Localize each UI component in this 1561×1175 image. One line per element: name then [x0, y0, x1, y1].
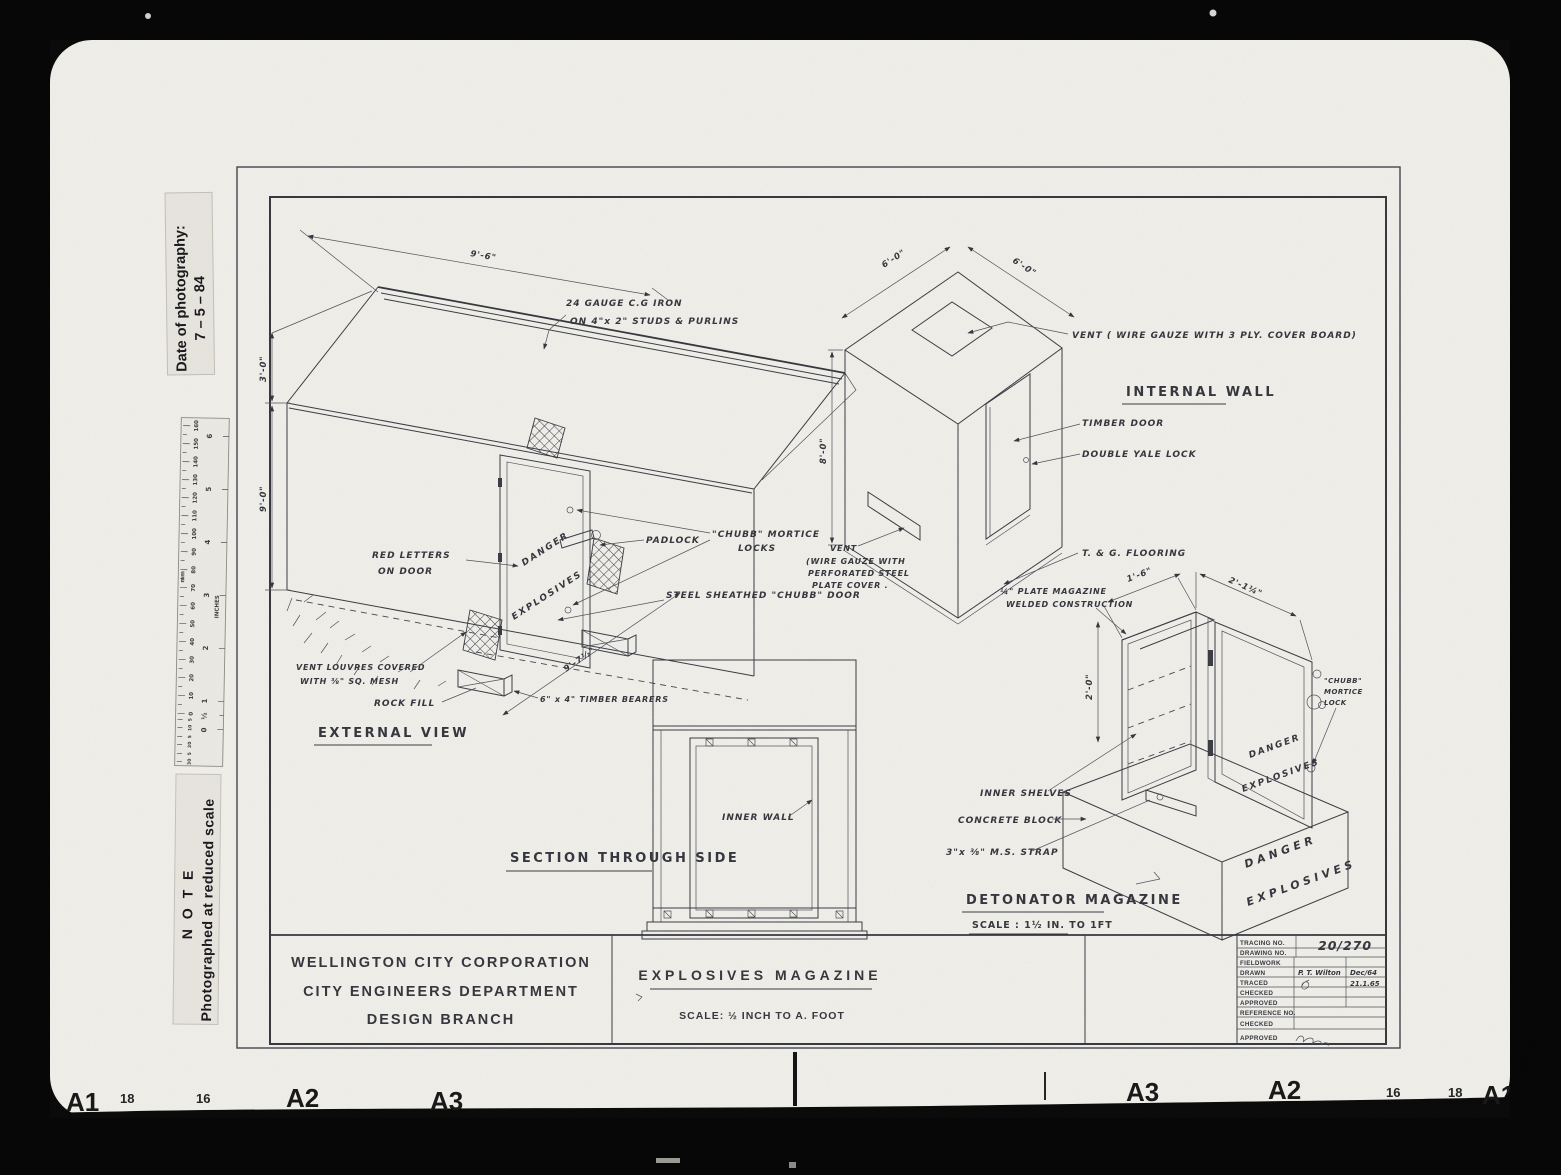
film-speck [656, 1158, 680, 1163]
ruler-num: 70 [191, 584, 197, 592]
film-speck [789, 1162, 796, 1168]
hinge [498, 553, 502, 562]
drawn-by-value: P. T. Wilton [1298, 969, 1341, 977]
date-label-text: Date of photography: [172, 225, 190, 372]
ruler-num: 20 [189, 674, 195, 682]
date-value-text: 7 – 5 – 84 [192, 276, 209, 341]
ruler-inch: 5 [205, 486, 213, 491]
checked-label: CHECKED [1240, 990, 1273, 997]
plate-label2: WELDED CONSTRUCTION [1006, 600, 1133, 609]
ruler-sub: 30 [187, 759, 193, 765]
padlock-label: PADLOCK [646, 536, 700, 546]
inner-wall-label: INNER WALL [722, 813, 795, 823]
steel-door-label: STEEL SHEATHED "CHUBB" DOOR [666, 591, 861, 601]
vent-top-label: VENT ( WIRE GAUZE WITH 3 PLY. COVER BOAR… [1072, 331, 1357, 341]
fieldwork-label: FIELDWORK [1240, 960, 1281, 967]
plate-label1: ¼" PLATE MAGAZINE [1000, 586, 1107, 596]
note-body-text: Photographed at reduced scale [198, 798, 217, 1021]
ruler-inch: 6 [206, 433, 214, 438]
ruler-num: 110 [192, 510, 198, 522]
chubb-locks-label: "CHUBB" MORTICE [712, 530, 820, 540]
ruler-num: 150 [194, 438, 200, 450]
checked2-label: CHECKED [1240, 1021, 1273, 1028]
concrete-label: CONCRETE BLOCK [958, 816, 1062, 826]
door-hinge [1208, 650, 1213, 666]
ruler-sub: 20 [187, 742, 193, 748]
det-chubb-label2: MORTICE [1324, 688, 1363, 696]
vent-bottom-label1: VENT [830, 544, 857, 553]
tracing-no-label: TRACING NO. [1240, 940, 1285, 947]
louvres-label: VENT LOUVRES COVERED [296, 663, 425, 672]
det-chubb-label3: LOCK [1324, 699, 1347, 707]
drawing-title: EXPLOSIVES MAGAZINE [638, 967, 881, 983]
wall-height-dim: 9'-0" [259, 486, 269, 512]
red-letters-label: RED LETTERS [372, 551, 451, 561]
ruler-sub: 10 [187, 725, 193, 731]
ruler-sub: 5 [187, 718, 193, 721]
cgi-label: 24 GAUGE C.G IRON [566, 299, 683, 309]
edge-mark: 18 [1448, 1085, 1462, 1100]
drawn-date-value: Dec/64 [1350, 969, 1377, 977]
edge-mark: A3 [430, 1086, 463, 1116]
flooring-label: T. & G. FLOORING [1082, 549, 1186, 559]
note-label: N O T E Photographed at reduced scale [173, 774, 221, 1025]
gable-height-dim: 3'-0" [259, 356, 269, 382]
ruler-num: 0 [189, 712, 195, 716]
drawn-label: DRAWN [1240, 970, 1265, 977]
ruler-inches-label: INCHES [214, 595, 220, 618]
ruler-zero: 0 [200, 727, 208, 732]
hinge [498, 478, 502, 487]
height-dim-text: 8'-0" [819, 438, 829, 464]
section-title: SECTION THROUGH SIDE [510, 851, 739, 866]
film-speck [145, 13, 151, 19]
edge-mark: A1 [66, 1087, 99, 1117]
ruler-num: 130 [193, 474, 199, 486]
chubb-locks-label2: LOCKS [738, 544, 776, 554]
reference-no-label: REFERENCE NO. [1240, 1010, 1296, 1017]
ruler-inch: 1 [201, 698, 209, 703]
note-title-text: N O T E [179, 867, 196, 939]
ruler-inch: 4 [204, 539, 212, 544]
reference-ruler: 160 150 140 130 120 110 100 90 80 70 60 … [175, 418, 230, 767]
ruler-inch: 3 [203, 592, 211, 597]
traced-date-value: 21.1.65 [1350, 980, 1380, 988]
ruler-num: 120 [193, 492, 199, 504]
tracing-no-value: 20/270 [1318, 938, 1372, 953]
approved-label: APPROVED [1240, 1000, 1278, 1007]
ruler-sub: 5 [187, 735, 193, 738]
ruler-num: 60 [191, 602, 197, 610]
detonator-title: DETONATOR MAGAZINE [966, 893, 1183, 908]
approved2-label: APPROVED [1240, 1035, 1278, 1042]
edge-mark: 16 [1386, 1085, 1400, 1100]
ruler-num: 40 [190, 638, 196, 646]
org-line3: DESIGN BRANCH [367, 1012, 515, 1028]
timber-door-label: TIMBER DOOR [1082, 419, 1164, 429]
rock-fill-label: ROCK FILL [374, 699, 435, 709]
photographed-drawing: Date of photography: 7 – 5 – 84 160 150 … [0, 0, 1561, 1175]
date-of-photography-label: Date of photography: 7 – 5 – 84 [165, 192, 215, 375]
wall-vent-louvre [587, 538, 624, 594]
external-view-title: EXTERNAL VIEW [318, 726, 469, 741]
edge-mark: 16 [196, 1091, 210, 1106]
red-letters-label2: ON DOOR [378, 567, 433, 577]
ruler-num: 10 [189, 692, 195, 700]
ruler-num: 160 [194, 420, 200, 432]
ruler-sub: 5 [187, 752, 193, 755]
detonator-scale: SCALE : 1½ IN. TO 1FT [972, 920, 1113, 931]
traced-label: TRACED [1240, 980, 1268, 987]
yale-lock-label: DOUBLE YALE LOCK [1082, 450, 1197, 460]
edge-mark: A2 [1268, 1075, 1301, 1105]
bearers-label: 6" x 4" TIMBER BEARERS [540, 695, 669, 704]
ruler-num: 80 [191, 566, 197, 574]
shelves-label: INNER SHELVES [980, 789, 1072, 799]
det-dim-h-text: 2'-0" [1085, 674, 1095, 700]
det-chubb-label1: "CHUBB" [1324, 677, 1362, 685]
org-line2: CITY ENGINEERS DEPARTMENT [303, 984, 579, 1000]
ruler-inch: 2 [202, 645, 210, 650]
internal-wall-title: INTERNAL WALL [1126, 385, 1276, 400]
edge-mark: A3 [1126, 1077, 1159, 1107]
film-speck [1210, 10, 1217, 17]
org-line1: WELLINGTON CITY CORPORATION [291, 955, 591, 971]
drawing-scale: SCALE: ½ INCH TO A. FOOT [679, 1010, 845, 1022]
ruler-mm-label: mm [180, 571, 186, 583]
ruler-num: 140 [193, 456, 199, 468]
strap-label: 3"x ⅜" M.S. STRAP [946, 848, 1059, 858]
ruler-half: ½ [201, 712, 209, 719]
vent-bottom-label3: PERFORATED STEEL [808, 569, 910, 578]
edge-mark: 18 [120, 1091, 134, 1106]
ruler-num: 30 [190, 656, 196, 664]
vent-bottom-label2: (WIRE GAUZE WITH [806, 557, 906, 566]
drawing-canvas: Date of photography: 7 – 5 – 84 160 150 … [0, 0, 1561, 1175]
louvres-label2: WITH ⅜" SQ. MESH [300, 677, 399, 686]
ruler-num: 50 [190, 620, 196, 628]
edge-mark: A2 [286, 1083, 319, 1113]
drawing-no-label: DRAWING NO. [1240, 950, 1287, 957]
ruler-num: 90 [192, 548, 198, 556]
ruler-num: 100 [192, 528, 198, 540]
cgi-label2: ON 4"x 2" STUDS & PURLINS [570, 317, 739, 327]
vent-bottom-label4: PLATE COVER . [812, 581, 889, 590]
